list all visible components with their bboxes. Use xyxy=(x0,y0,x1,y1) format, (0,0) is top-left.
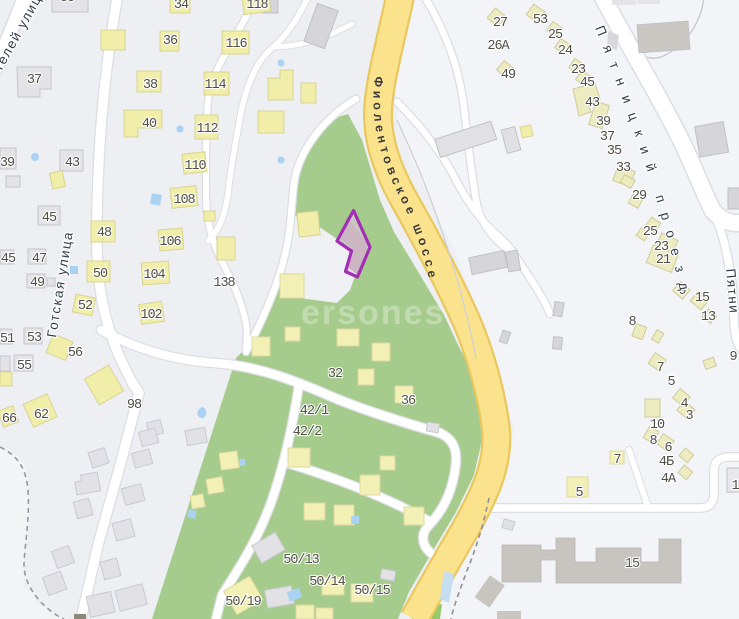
svg-text:42/2: 42/2 xyxy=(293,425,322,440)
svg-text:43: 43 xyxy=(65,156,80,171)
svg-text:40: 40 xyxy=(142,117,157,132)
svg-text:33: 33 xyxy=(60,0,75,6)
svg-text:15: 15 xyxy=(695,291,710,306)
svg-text:50: 50 xyxy=(93,267,108,282)
svg-text:49: 49 xyxy=(30,276,45,291)
svg-text:39: 39 xyxy=(596,115,611,130)
svg-text:36: 36 xyxy=(163,34,178,49)
svg-text:25: 25 xyxy=(643,225,658,240)
svg-text:5: 5 xyxy=(575,486,583,501)
svg-text:9: 9 xyxy=(729,350,737,365)
svg-text:ersones: ersones xyxy=(301,294,445,332)
svg-text:32: 32 xyxy=(328,367,343,382)
svg-text:53: 53 xyxy=(27,331,42,346)
svg-text:62: 62 xyxy=(34,408,49,423)
svg-text:34: 34 xyxy=(174,0,189,13)
svg-text:8: 8 xyxy=(628,315,636,330)
svg-text:53: 53 xyxy=(533,13,548,28)
svg-text:116: 116 xyxy=(225,37,247,52)
svg-text:102: 102 xyxy=(140,308,162,323)
svg-text:13: 13 xyxy=(701,310,716,325)
svg-text:38: 38 xyxy=(143,78,158,93)
svg-text:4А: 4А xyxy=(661,472,677,487)
svg-text:50/13: 50/13 xyxy=(283,553,319,568)
svg-text:10: 10 xyxy=(650,418,665,433)
svg-text:3: 3 xyxy=(685,409,693,424)
svg-text:6: 6 xyxy=(664,441,672,456)
svg-text:118: 118 xyxy=(246,0,268,13)
svg-text:7: 7 xyxy=(656,361,664,376)
svg-text:39: 39 xyxy=(0,156,15,171)
svg-text:33: 33 xyxy=(616,161,631,176)
svg-text:27: 27 xyxy=(493,16,508,31)
svg-text:45: 45 xyxy=(1,252,16,267)
svg-text:104: 104 xyxy=(143,268,165,283)
svg-text:37: 37 xyxy=(600,130,615,145)
svg-text:50/19: 50/19 xyxy=(225,595,261,610)
svg-text:15: 15 xyxy=(625,557,640,572)
svg-text:56: 56 xyxy=(68,346,83,361)
svg-text:45: 45 xyxy=(42,211,57,226)
svg-text:8: 8 xyxy=(649,434,657,449)
svg-text:29: 29 xyxy=(632,189,647,204)
svg-text:42/1: 42/1 xyxy=(300,404,329,419)
svg-text:138: 138 xyxy=(213,276,235,291)
svg-text:114: 114 xyxy=(204,78,226,93)
svg-text:1: 1 xyxy=(731,479,739,494)
svg-text:25: 25 xyxy=(548,28,563,43)
svg-text:49: 49 xyxy=(501,68,516,83)
svg-text:50/15: 50/15 xyxy=(354,584,390,599)
svg-text:48: 48 xyxy=(97,226,112,241)
svg-text:37: 37 xyxy=(27,73,42,88)
svg-text:43: 43 xyxy=(585,96,600,111)
svg-text:35: 35 xyxy=(607,144,622,159)
svg-text:7: 7 xyxy=(613,453,621,468)
svg-text:51: 51 xyxy=(0,332,15,347)
svg-text:4Б: 4Б xyxy=(659,455,674,470)
svg-text:36: 36 xyxy=(401,394,416,409)
svg-text:47: 47 xyxy=(32,252,47,267)
svg-text:98: 98 xyxy=(127,398,142,413)
svg-text:45: 45 xyxy=(580,76,595,91)
svg-text:66: 66 xyxy=(2,412,17,427)
svg-text:5: 5 xyxy=(667,375,675,390)
svg-text:108: 108 xyxy=(173,193,195,208)
svg-text:24: 24 xyxy=(558,44,573,59)
svg-text:50/14: 50/14 xyxy=(309,575,345,590)
svg-text:112: 112 xyxy=(196,122,218,137)
svg-text:55: 55 xyxy=(17,359,32,374)
svg-text:26А: 26А xyxy=(487,39,510,54)
svg-text:106: 106 xyxy=(159,235,181,250)
svg-text:52: 52 xyxy=(78,299,93,314)
svg-text:110: 110 xyxy=(184,159,206,174)
